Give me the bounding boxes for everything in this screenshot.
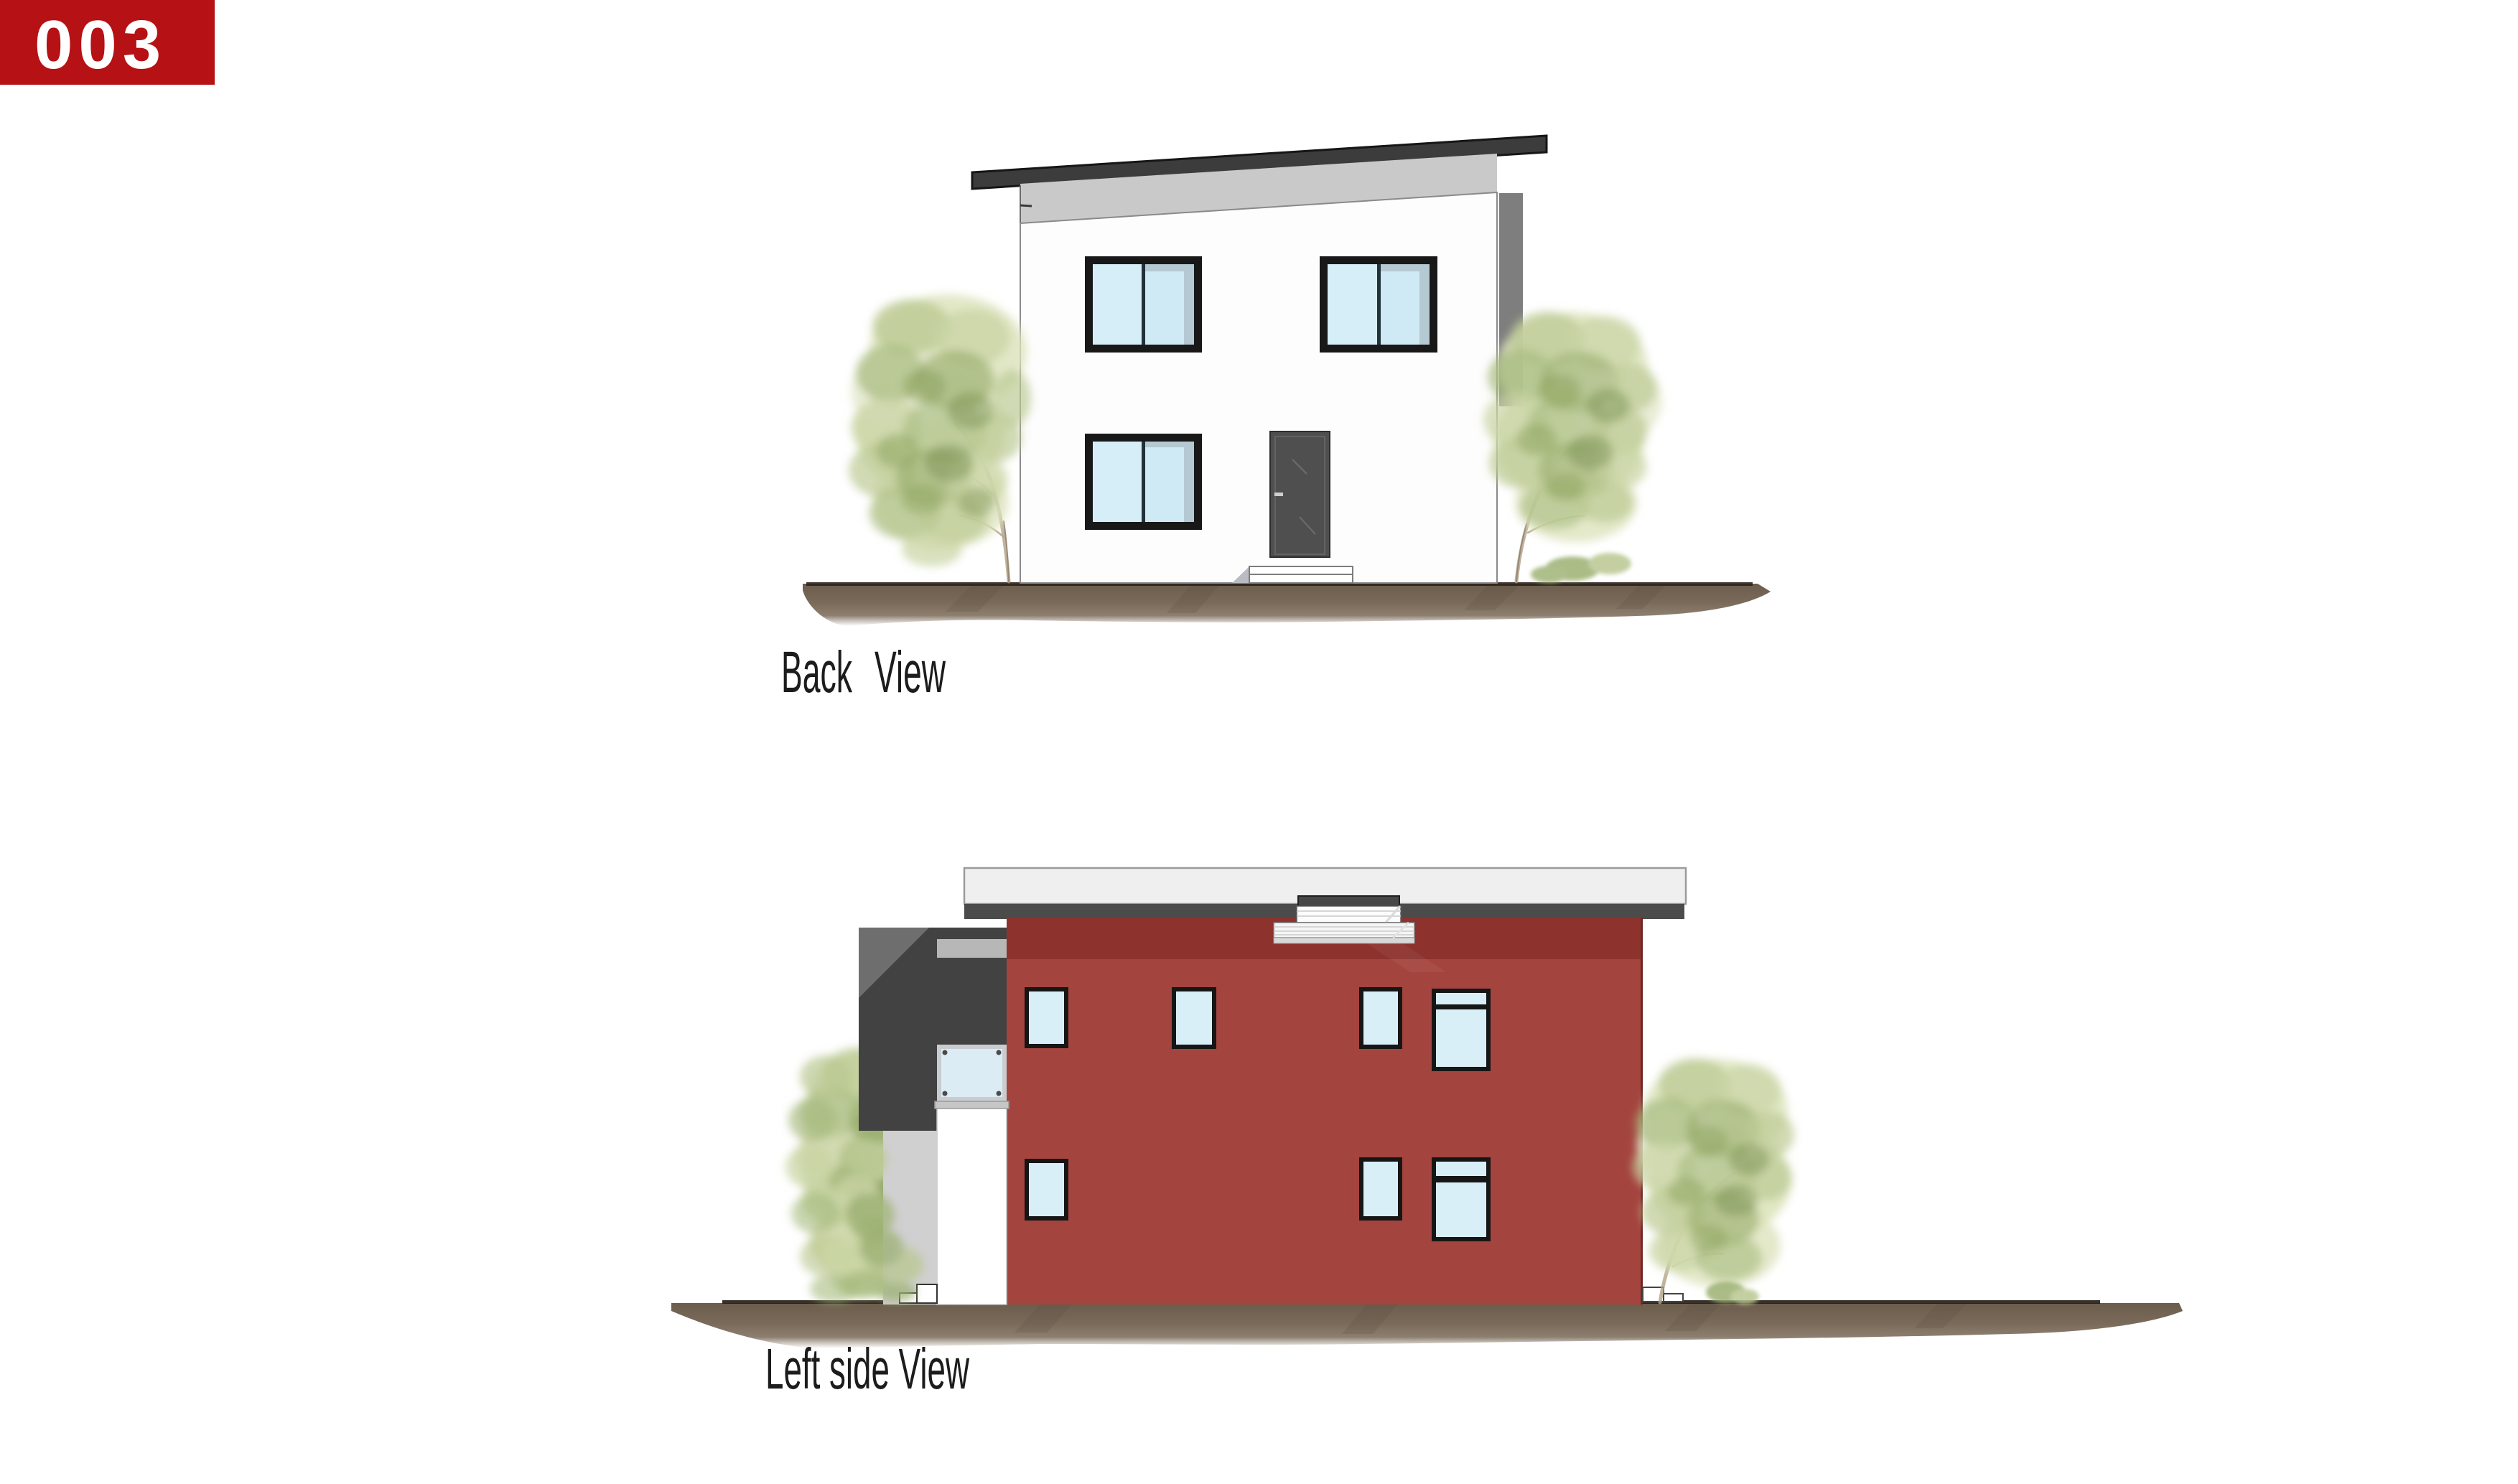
svg-text:View: View — [875, 640, 946, 705]
svg-text:Back: Back — [781, 640, 853, 705]
svg-text:Left side View: Left side View — [765, 1337, 969, 1401]
svg-text:003: 003 — [34, 6, 167, 83]
